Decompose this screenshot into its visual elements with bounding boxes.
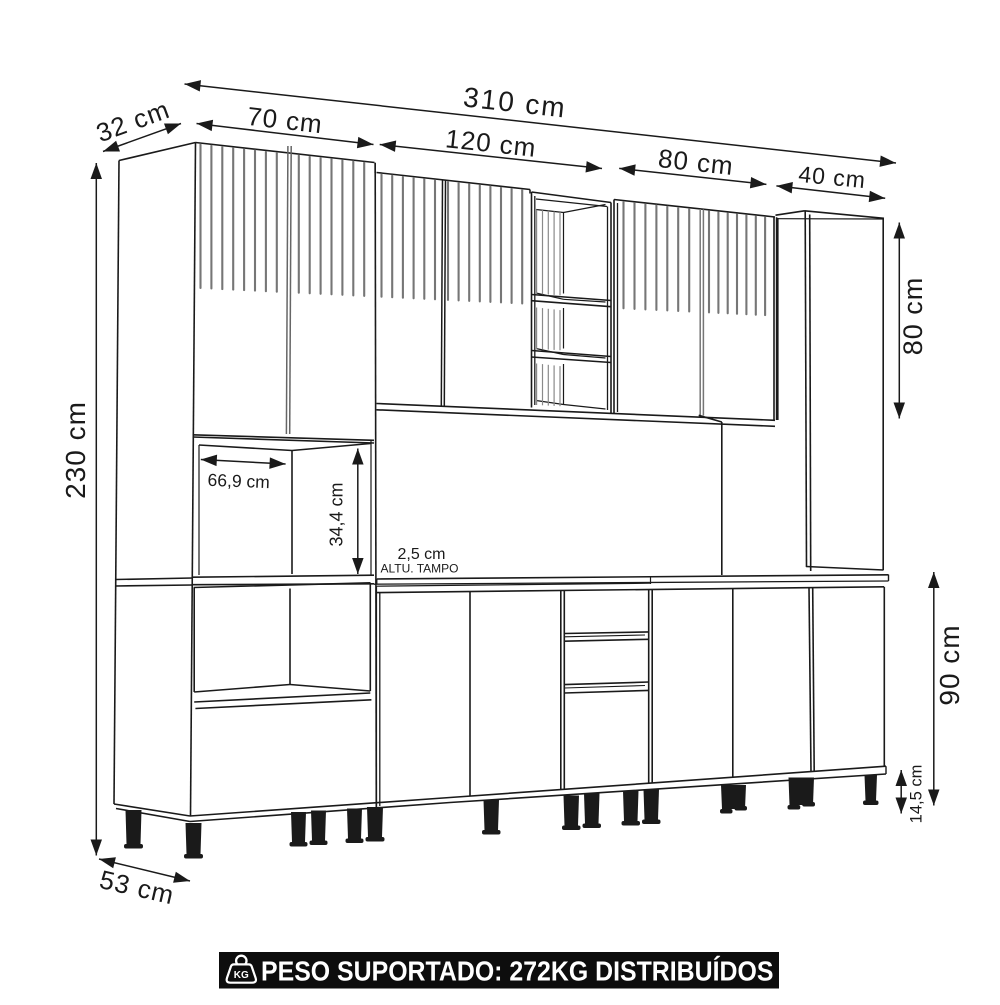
svg-text:230 cm: 230 cm (60, 401, 91, 499)
svg-text:90 cm: 90 cm (934, 624, 965, 705)
svg-text:ALTU. TAMPO: ALTU. TAMPO (380, 562, 458, 576)
svg-text:34,4 cm: 34,4 cm (327, 482, 347, 546)
svg-text:14,5 cm: 14,5 cm (908, 765, 926, 824)
svg-text:80 cm: 80 cm (898, 277, 928, 356)
svg-text:PESO SUPORTADO: 272KG DISTRIBU: PESO SUPORTADO: 272KG DISTRIBUÍDOS (261, 955, 773, 986)
svg-text:66,9 cm: 66,9 cm (207, 470, 270, 492)
svg-text:2,5 cm: 2,5 cm (397, 546, 445, 563)
svg-text:KG: KG (234, 970, 249, 981)
